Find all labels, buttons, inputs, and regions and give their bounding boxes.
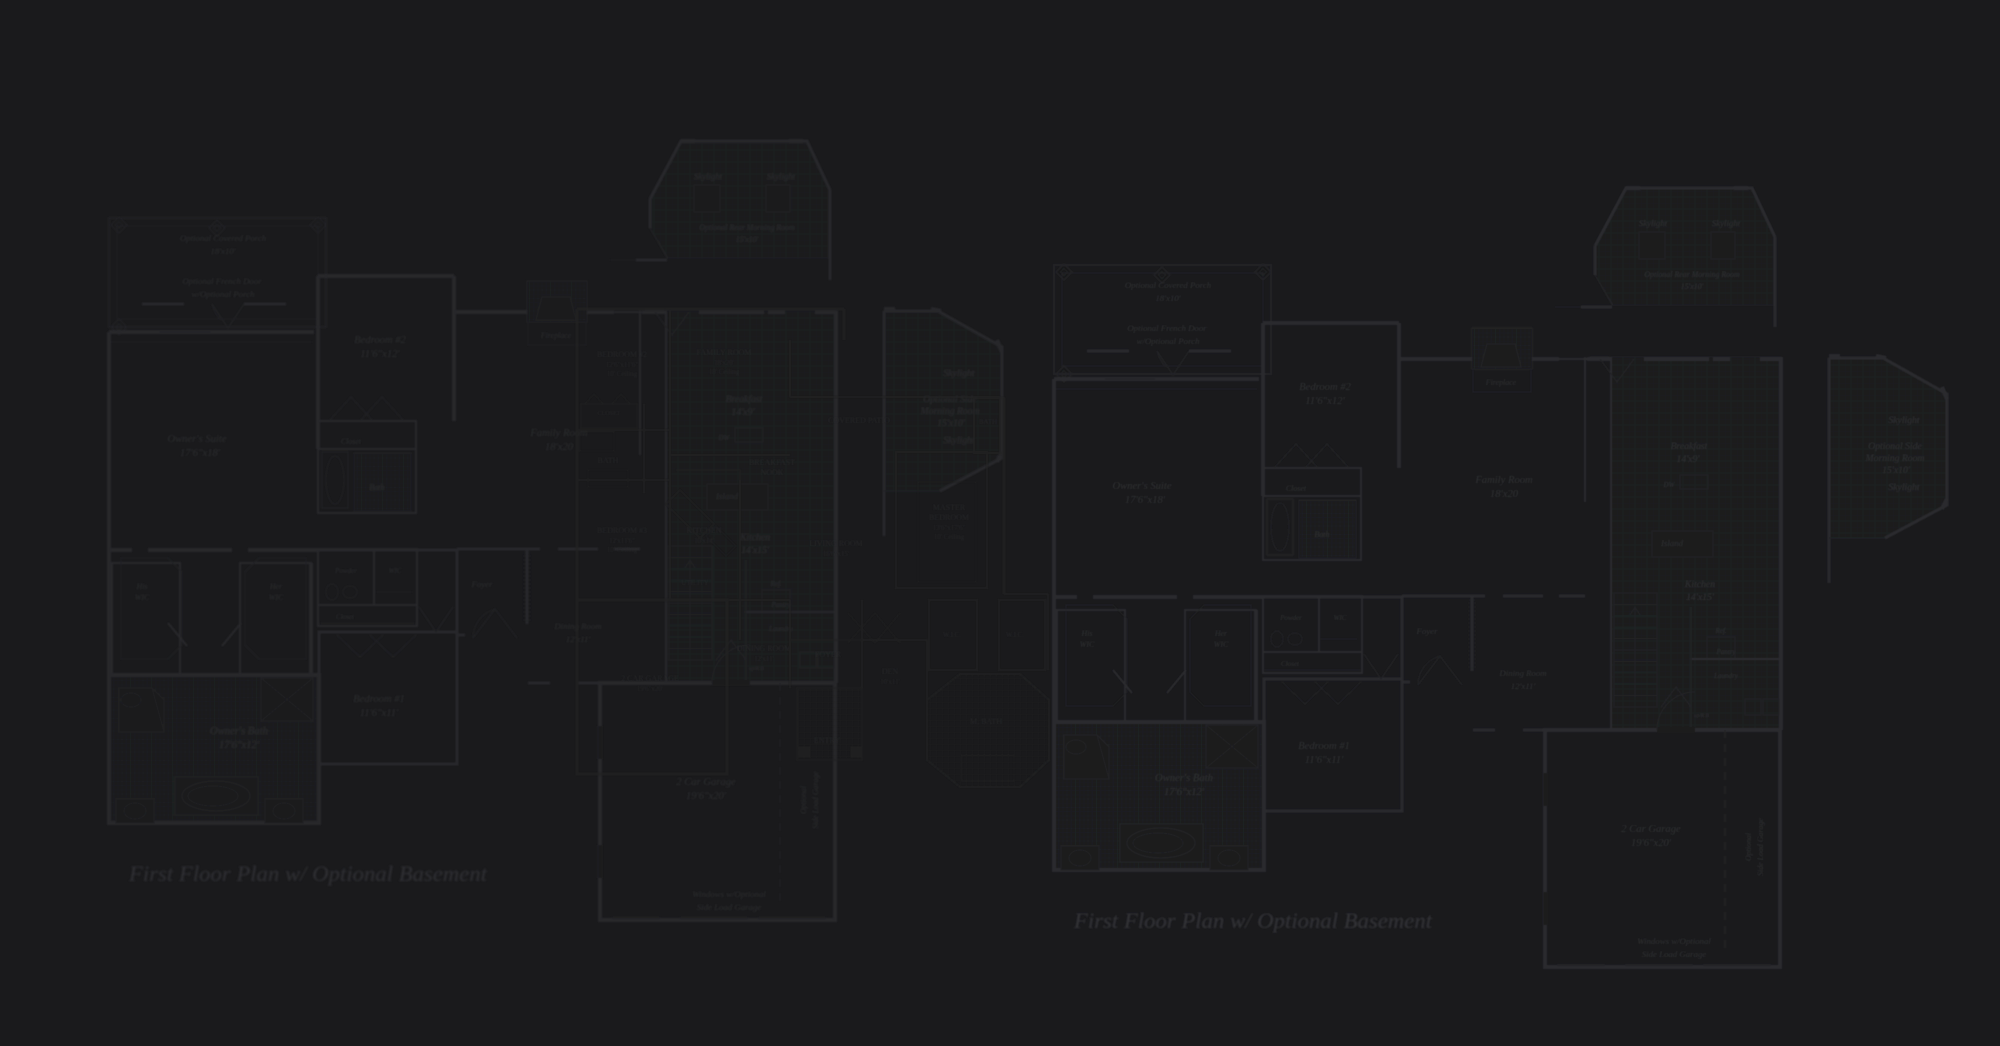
svg-text:16'6"x15': 16'6"x15' [823,550,849,558]
svg-text:MASTER: MASTER [933,503,966,512]
svg-text:18'x20': 18'x20' [714,359,734,367]
svg-text:12'6"x11'6": 12'6"x11'6" [606,361,639,369]
svg-text:DEN: DEN [882,667,899,676]
svg-text:10' Ceiling: 10' Ceiling [607,370,638,378]
svg-text:CLOSET: CLOSET [598,411,621,417]
svg-text:10' Ceiling: 10' Ceiling [709,368,740,376]
svg-text:19'6"x20': 19'6"x20' [637,685,663,693]
svg-text:W.I.C.: W.I.C. [1006,631,1024,639]
svg-text:FOYER: FOYER [815,650,842,659]
svg-text:DINING ROOM: DINING ROOM [737,644,791,653]
svg-text:BEDROOM #2: BEDROOM #2 [597,350,647,359]
svg-text:LIVING ROOM: LIVING ROOM [809,539,863,548]
svg-text:13'6"x17'6": 13'6"x17'6" [933,524,966,532]
svg-text:BATH: BATH [598,456,619,465]
svg-text:2 CAR GARAGE: 2 CAR GARAGE [621,674,679,683]
svg-text:UTILITY: UTILITY [681,579,709,587]
svg-text:BATH: BATH [979,418,997,426]
svg-text:BEDROOM: BEDROOM [929,513,969,522]
svg-text:10' Ceiling: 10' Ceiling [934,533,965,541]
svg-text:BREAKFAST: BREAKFAST [749,458,795,467]
svg-text:NOOK: NOOK [760,468,783,477]
svg-text:12'x11': 12'x11' [754,655,774,663]
svg-text:W.I.C.: W.I.C. [943,631,961,639]
svg-text:10'x11': 10'x11' [880,678,900,686]
svg-text:COVERED PATIO: COVERED PATIO [828,416,890,425]
svg-text:BEDROOM #3: BEDROOM #3 [597,526,647,535]
svg-text:FAMILY ROOM: FAMILY ROOM [697,348,752,357]
svg-text:10' Ceiling: 10' Ceiling [607,546,638,554]
svg-text:12'x11'6": 12'x11'6" [609,537,635,545]
